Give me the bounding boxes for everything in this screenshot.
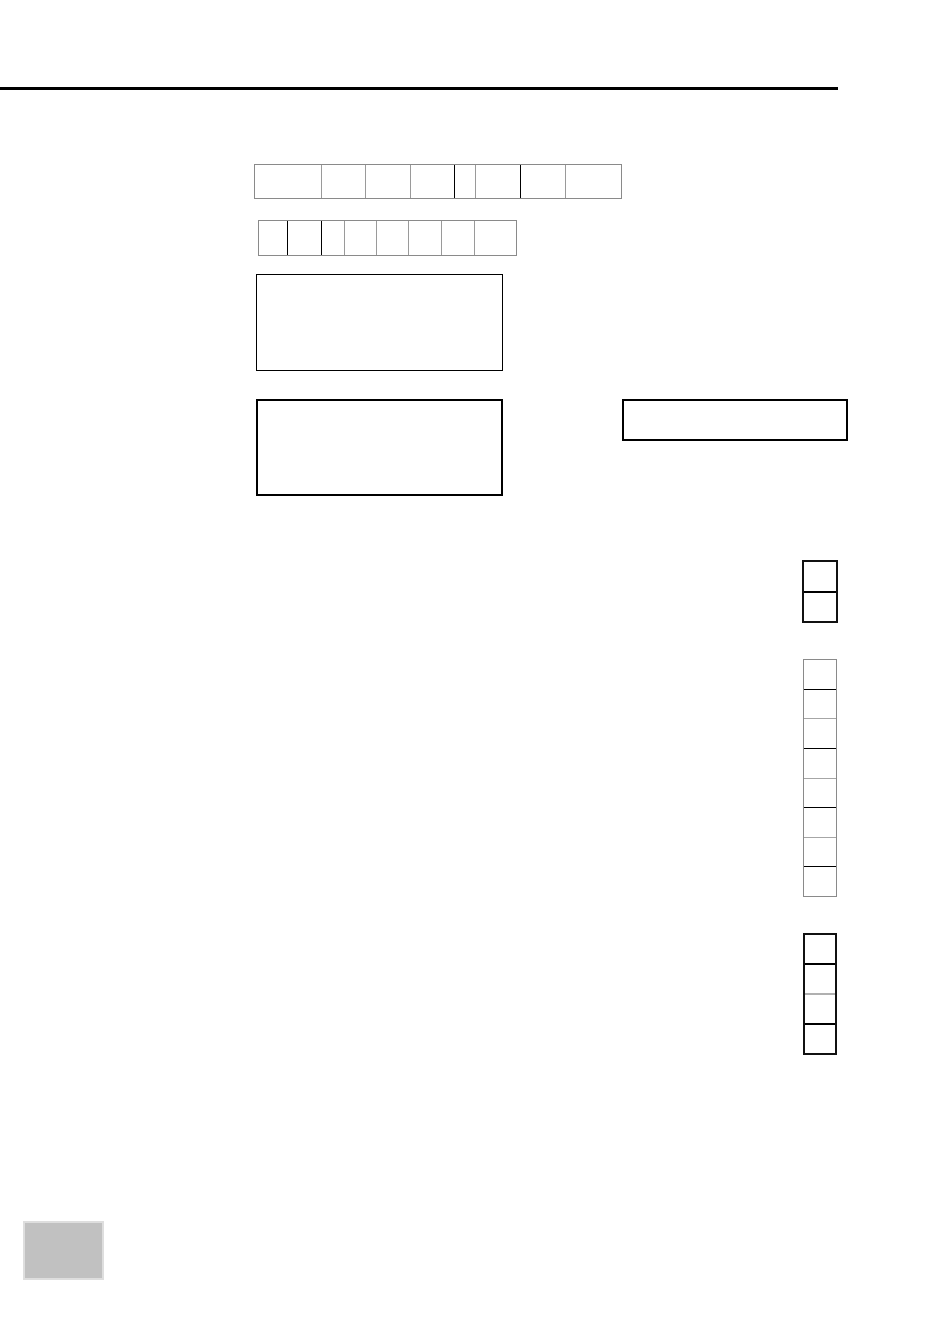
document-page xyxy=(0,0,950,1344)
empty-cell xyxy=(804,749,836,779)
empty-cell xyxy=(475,221,509,255)
empty-field-box-lower xyxy=(256,399,503,496)
empty-cell xyxy=(411,165,455,198)
empty-cell xyxy=(455,165,476,198)
empty-field-box-upper xyxy=(256,274,503,371)
empty-cell xyxy=(804,593,836,622)
empty-cell xyxy=(345,221,377,255)
empty-cell xyxy=(804,690,836,720)
empty-cell xyxy=(804,719,836,749)
empty-cell xyxy=(804,562,836,593)
empty-cell xyxy=(805,965,835,995)
empty-cell xyxy=(322,165,366,198)
empty-cell xyxy=(804,808,836,838)
code-cell-row-bottom xyxy=(258,220,517,256)
margin-cell-column-pair xyxy=(802,560,838,623)
gray-placeholder-block xyxy=(23,1221,104,1280)
empty-cell xyxy=(366,165,411,198)
empty-cell xyxy=(409,221,442,255)
empty-cell xyxy=(805,1025,835,1053)
empty-cell xyxy=(566,165,614,198)
empty-cell xyxy=(377,221,409,255)
empty-cell xyxy=(805,995,835,1025)
empty-cell xyxy=(804,838,836,868)
empty-cell xyxy=(521,165,566,198)
empty-cell xyxy=(804,867,836,896)
empty-cell xyxy=(322,221,345,255)
empty-cell xyxy=(259,221,288,255)
empty-cell xyxy=(442,221,475,255)
code-cell-row-top xyxy=(254,164,622,199)
header-rule xyxy=(0,87,838,90)
margin-cell-column-eight xyxy=(803,659,837,897)
empty-field-box-right xyxy=(622,399,848,441)
empty-cell xyxy=(804,660,836,690)
empty-cell xyxy=(805,935,835,965)
empty-cell xyxy=(476,165,521,198)
margin-cell-column-four xyxy=(803,933,837,1055)
empty-cell xyxy=(288,221,322,255)
empty-cell xyxy=(804,779,836,809)
empty-cell xyxy=(255,165,322,198)
